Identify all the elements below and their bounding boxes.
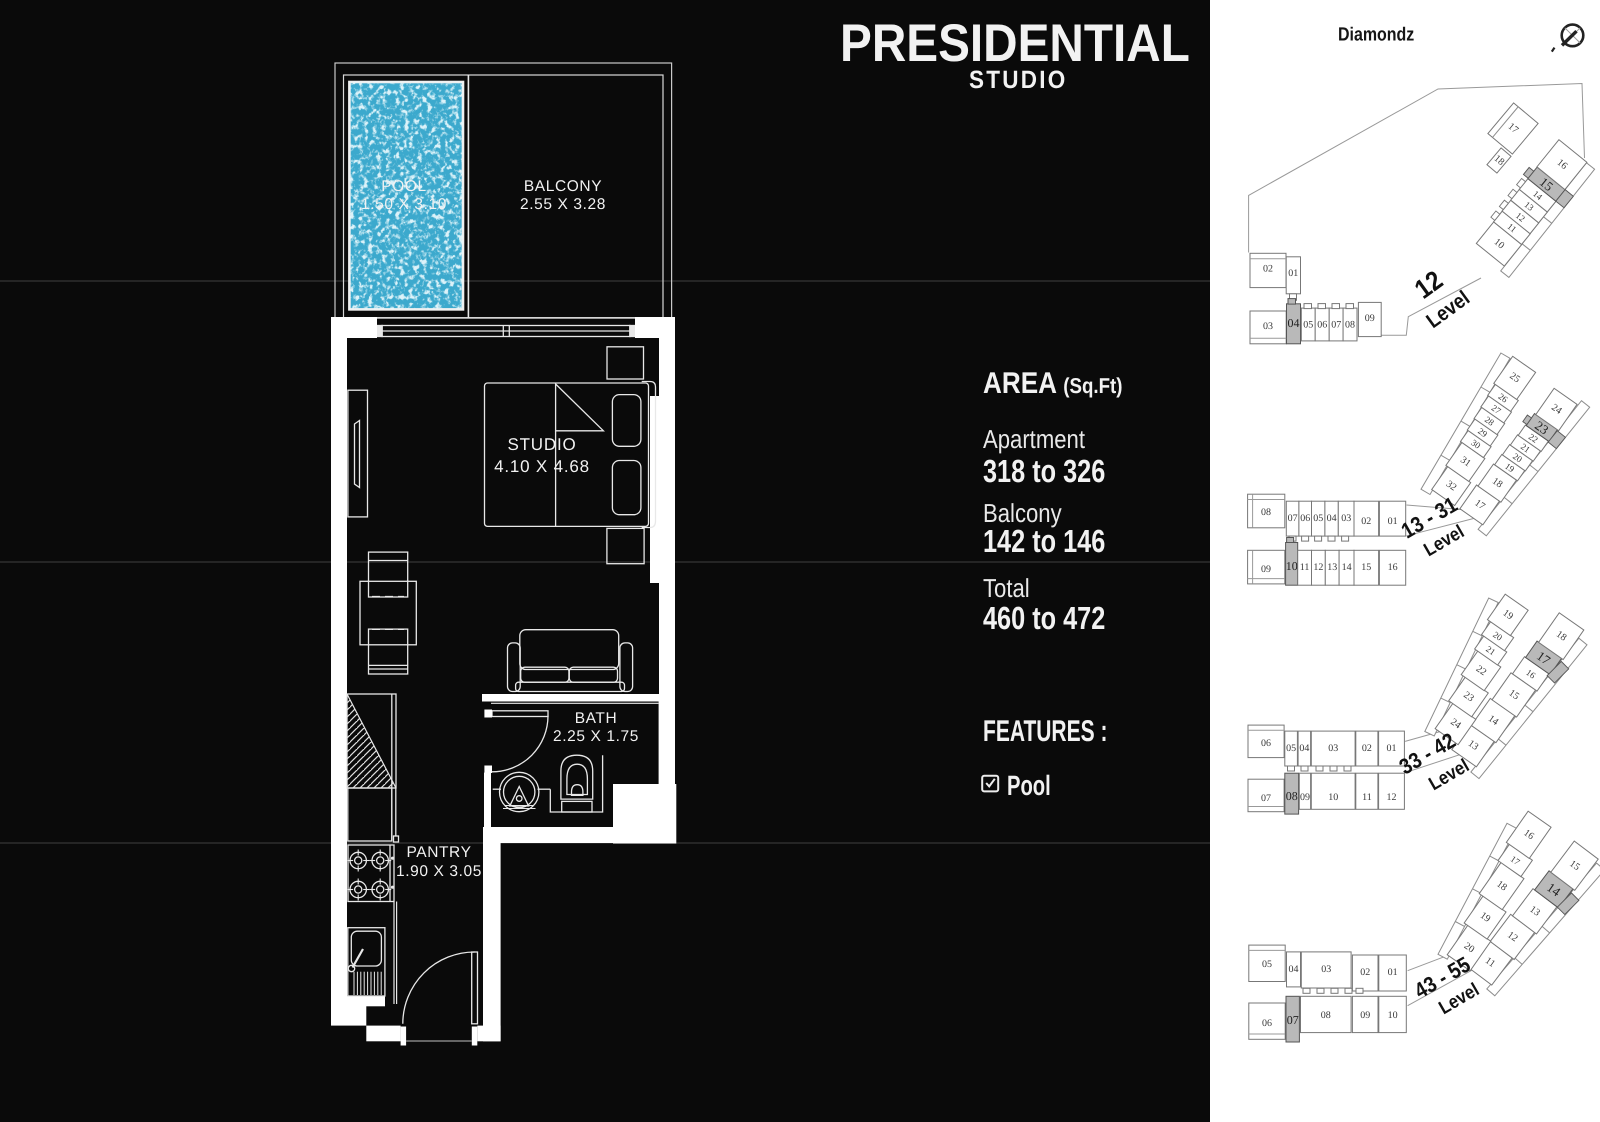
svg-text:03: 03 [1263,321,1273,332]
svg-text:02: 02 [1263,264,1273,275]
svg-text:PANTRY: PANTRY [406,844,471,861]
svg-text:07: 07 [1288,513,1298,524]
svg-text:1.50 X 3.10: 1.50 X 3.10 [361,196,447,213]
svg-text:09: 09 [1261,564,1271,575]
svg-text:4.10 X 4.68: 4.10 X 4.68 [494,457,590,476]
svg-text:04: 04 [1289,964,1299,975]
svg-text:05: 05 [1262,959,1272,970]
svg-text:06: 06 [1261,738,1271,749]
svg-text:10: 10 [1328,792,1338,803]
svg-text:09: 09 [1365,313,1375,324]
svg-text:03: 03 [1341,513,1351,524]
svg-text:08: 08 [1321,1010,1331,1021]
svg-text:06: 06 [1262,1018,1272,1029]
svg-text:10: 10 [1286,559,1298,573]
svg-text:02: 02 [1362,743,1372,754]
svg-text:12: 12 [1387,792,1397,803]
svg-text:06: 06 [1300,513,1310,524]
svg-text:05: 05 [1303,320,1313,331]
svg-text:04: 04 [1288,316,1300,330]
svg-text:05: 05 [1313,513,1323,524]
svg-text:08: 08 [1286,789,1298,803]
svg-text:POOL: POOL [381,178,426,195]
svg-text:03: 03 [1321,964,1331,975]
svg-text:01: 01 [1387,743,1397,754]
svg-text:12: 12 [1313,562,1323,573]
svg-text:1.90 X 3.05: 1.90 X 3.05 [396,863,482,880]
svg-text:15: 15 [1361,562,1371,573]
svg-text:BATH: BATH [575,710,618,727]
svg-text:11: 11 [1300,562,1310,573]
svg-text:09: 09 [1360,1010,1370,1021]
svg-text:09: 09 [1300,792,1310,803]
svg-text:04: 04 [1327,513,1337,524]
svg-text:2.25 X 1.75: 2.25 X 1.75 [553,728,639,745]
svg-text:07: 07 [1331,320,1341,331]
svg-text:08: 08 [1261,507,1271,518]
svg-text:11: 11 [1362,792,1372,803]
svg-text:14: 14 [1342,562,1352,573]
svg-text:06: 06 [1317,320,1327,331]
svg-text:04: 04 [1299,743,1309,754]
svg-text:16: 16 [1388,562,1398,573]
svg-text:05: 05 [1286,743,1296,754]
svg-text:01: 01 [1388,967,1398,978]
svg-text:07: 07 [1287,1013,1299,1027]
svg-text:2.55 X 3.28: 2.55 X 3.28 [520,196,606,213]
svg-text:10: 10 [1388,1010,1398,1021]
svg-text:13: 13 [1327,562,1337,573]
svg-text:02: 02 [1360,967,1370,978]
svg-text:08: 08 [1345,320,1355,331]
svg-text:Diamondz: Diamondz [1338,25,1414,46]
svg-text:BALCONY: BALCONY [524,178,602,195]
svg-text:03: 03 [1328,743,1338,754]
svg-text:07: 07 [1261,793,1271,804]
svg-text:STUDIO: STUDIO [507,435,576,454]
svg-text:01: 01 [1288,268,1298,279]
svg-text:02: 02 [1361,516,1371,527]
